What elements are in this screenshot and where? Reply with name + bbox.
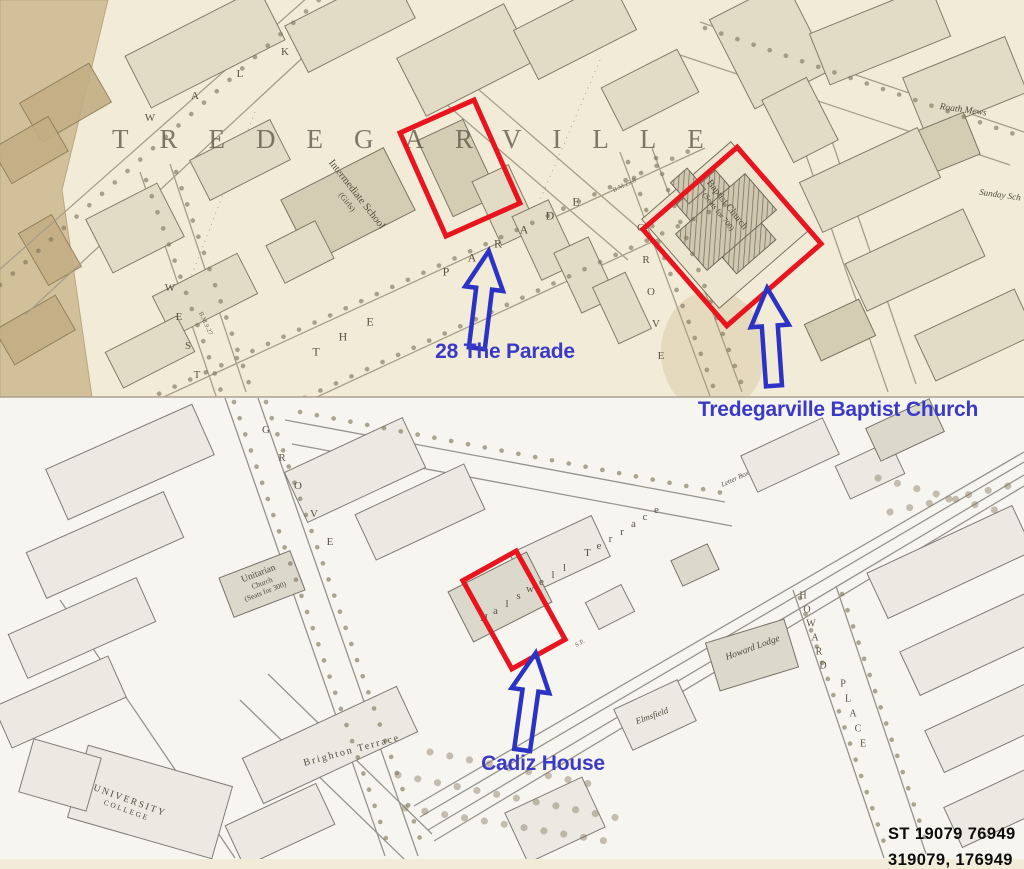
- street-letter-howard: H: [799, 591, 806, 602]
- map-label-intermediate-school: Intermediate School(Girls): [317, 158, 387, 239]
- street-letter-walk: L: [237, 68, 244, 80]
- street-letter-parade: P: [443, 265, 450, 280]
- street-letter-halswell: a: [631, 518, 636, 530]
- map-label-letter-box: Letter Box: [720, 469, 750, 489]
- street-letter-the: H: [339, 330, 348, 345]
- map-screenshot: { "map": { "district_label": "TREDEGARVI…: [0, 0, 1024, 859]
- map-label-elmsfield: Elmsfield: [634, 705, 670, 727]
- street-letter-grove_east: E: [658, 350, 665, 362]
- map-label-roath-mews: Roath Mews: [939, 102, 987, 120]
- annotation-label-cadiz-house: Cadiz House: [481, 752, 605, 776]
- street-letter-halswell: r: [609, 533, 613, 545]
- street-letter-west: S: [185, 340, 191, 352]
- street-letter-place: E: [860, 739, 866, 750]
- map-mark-bm2: B.M.25.8: [612, 177, 637, 194]
- map-label-sunday-school: Sunday Sch: [979, 187, 1022, 204]
- street-letter-grove_east: R: [642, 254, 649, 266]
- street-letter-parade: A: [520, 223, 529, 238]
- map-mark-bm1: B.M.9.27: [197, 311, 214, 336]
- street-letter-halswell: T: [584, 547, 591, 559]
- street-letter-halswell: e: [597, 540, 602, 552]
- street-letter-grove_east: V: [652, 318, 660, 330]
- map-text-layer: WALKTHEPARADEWESTGROVEGROVEHOWARDPLACEHa…: [0, 0, 1024, 859]
- street-letter-parade: A: [468, 251, 477, 266]
- street-letter-grove_east: O: [647, 286, 655, 298]
- street-letter-halswell: e: [539, 576, 544, 588]
- map-label-howard-lodge: Howard Lodge: [724, 634, 781, 664]
- street-letter-grove_west: V: [310, 508, 318, 520]
- map-label-unitarian-church: UnitarianChurch(Seats for 300): [236, 562, 288, 605]
- street-letter-howard: A: [811, 633, 818, 644]
- grid-reference-secondary: 319079, 176949: [888, 852, 1016, 869]
- street-letter-parade: E: [572, 195, 579, 210]
- street-letter-halswell: c: [643, 511, 648, 523]
- street-letter-place: L: [845, 694, 851, 705]
- street-letter-grove_west: E: [327, 536, 334, 548]
- street-letter-place: P: [840, 679, 846, 690]
- street-letter-howard: R: [816, 647, 823, 658]
- street-letter-grove_west: R: [278, 452, 285, 464]
- grid-reference-primary: ST 19079 76949: [888, 826, 1016, 843]
- street-letter-grove_west: O: [294, 480, 302, 492]
- street-letter-halswell: e: [654, 504, 659, 516]
- street-letter-west: W: [165, 282, 175, 294]
- street-letter-howard: W: [806, 619, 815, 630]
- street-letter-place: A: [849, 709, 856, 720]
- street-letter-grove_west: G: [262, 424, 270, 436]
- grid-reference: ST 19079 76949 319079, 176949: [888, 826, 1016, 868]
- map-label-brighton-terrace: Brighton Terrace: [302, 732, 401, 769]
- street-letter-walk: W: [145, 112, 155, 124]
- street-letter-place: C: [855, 724, 862, 735]
- street-letter-walk: K: [281, 46, 289, 58]
- street-letter-parade: R: [494, 237, 502, 252]
- map-mark-sp: S.P.: [574, 638, 586, 649]
- street-letter-walk: A: [191, 90, 199, 102]
- street-letter-halswell: r: [620, 526, 624, 538]
- street-letter-west: T: [194, 369, 201, 381]
- street-letter-howard: O: [803, 605, 810, 616]
- annotation-label-28-the-parade: 28 The Parade: [435, 340, 575, 364]
- street-letter-halswell: l: [563, 562, 566, 574]
- annotation-label-baptist-church: Tredegarville Baptist Church: [698, 398, 978, 422]
- street-letter-halswell: l: [551, 569, 554, 581]
- map-label-university-college: UNIVERSITYCOLLEGE: [88, 783, 167, 828]
- street-letter-west: E: [176, 311, 183, 323]
- street-letter-parade: D: [546, 209, 555, 224]
- street-letter-the: T: [312, 345, 319, 360]
- street-letter-howard: D: [819, 661, 826, 672]
- street-letter-the: E: [366, 315, 373, 330]
